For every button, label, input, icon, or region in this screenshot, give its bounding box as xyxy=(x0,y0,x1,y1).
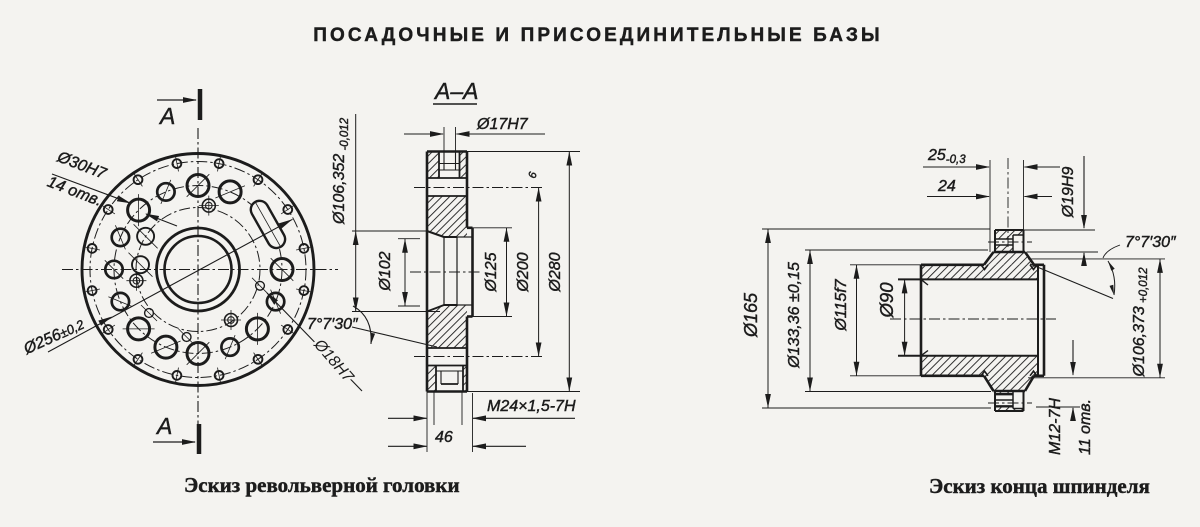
svg-text:А: А xyxy=(158,103,175,129)
svg-text:Ø102: Ø102 xyxy=(377,251,394,291)
svg-text:46: 46 xyxy=(435,429,453,446)
svg-text:А–А: А–А xyxy=(433,78,478,104)
svg-text:7°7′30″: 7°7′30″ xyxy=(307,316,359,333)
svg-text:Ø19Н9: Ø19Н9 xyxy=(1060,167,1077,219)
svg-text:Ø165: Ø165 xyxy=(741,292,761,338)
svg-text:Ø115f7: Ø115f7 xyxy=(833,278,850,331)
svg-text:Ø125: Ø125 xyxy=(483,252,500,292)
svg-text:Ø200: Ø200 xyxy=(515,252,532,292)
svg-text:Эскиз конца шпинделя: Эскиз конца шпинделя xyxy=(929,474,1150,498)
svg-text:Ø90: Ø90 xyxy=(876,282,897,319)
svg-text:11 отв.: 11 отв. xyxy=(1077,399,1094,455)
svg-text:М24×1,5-7Н: М24×1,5-7Н xyxy=(487,398,576,415)
svg-text:Ø280: Ø280 xyxy=(547,252,564,292)
svg-text:ПОСАДОЧНЫЕ И ПРИСОЕДИНИТЕЛЬН: ПОСАДОЧНЫЕ И ПРИСОЕДИНИТЕЛЬНЫЕ БАЗЫ xyxy=(313,25,882,46)
svg-text:24: 24 xyxy=(937,178,956,195)
svg-text:А: А xyxy=(155,413,172,439)
svg-text:Ø133,36 ±0,15: Ø133,36 ±0,15 xyxy=(786,262,803,369)
svg-text:7°7′30″: 7°7′30″ xyxy=(1125,234,1177,251)
svg-text:Ø17Н7: Ø17Н7 xyxy=(476,116,529,133)
svg-text:М12-7Н: М12-7Н xyxy=(1047,398,1064,455)
svg-text:Эскиз револьверной головки: Эскиз револьверной головки xyxy=(184,473,460,497)
